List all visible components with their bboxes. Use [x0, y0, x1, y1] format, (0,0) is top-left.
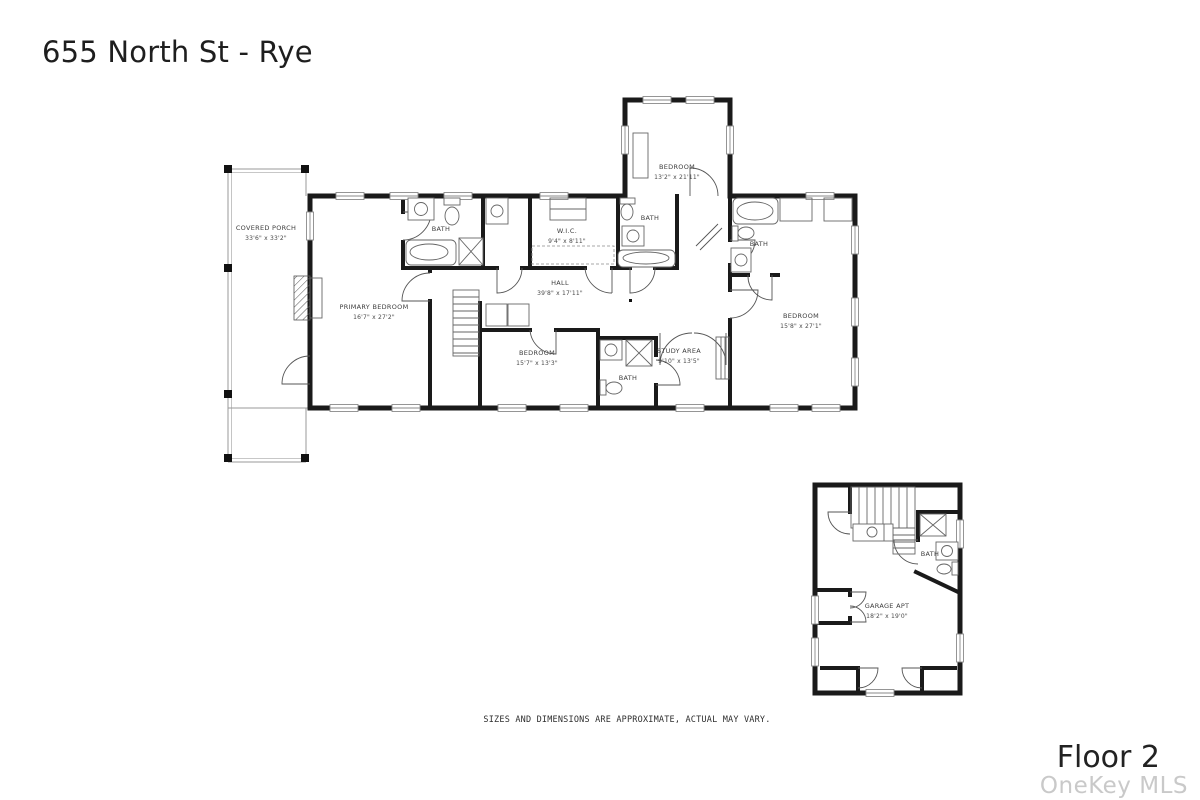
room-dims: 9'10" x 13'5" — [658, 358, 700, 365]
room-labels: COVERED PORCH 33'6" x 33'2" PRIMARY BEDR… — [236, 163, 939, 620]
room-name: BEDROOM — [783, 312, 819, 320]
room-dims: 16'7" x 27'2" — [353, 314, 395, 321]
window — [812, 405, 840, 412]
chimney — [294, 276, 322, 320]
room-label-covered-porch: COVERED PORCH 33'6" x 33'2" — [236, 224, 296, 242]
room-dims: 13'2" x 21'11" — [654, 174, 700, 181]
window — [852, 226, 859, 254]
room-dims: 18'2" x 19'0" — [866, 613, 908, 620]
room-name: BEDROOM — [659, 163, 695, 171]
water-closet-fixtures — [486, 198, 508, 224]
main-stairs — [453, 290, 479, 356]
window — [866, 690, 894, 697]
window — [676, 405, 704, 412]
room-name: HALL — [551, 279, 569, 287]
room-label-hall: HALL 39'8" x 17'11" — [537, 279, 583, 297]
garage-kitchenette — [853, 524, 893, 541]
room-label-bedroom-top: BEDROOM 13'2" x 21'11" — [654, 163, 700, 181]
room-name: PRIMARY BEDROOM — [340, 303, 409, 311]
window — [622, 126, 629, 154]
room-name: W.I.C. — [557, 227, 577, 235]
room-dims: 15'7" x 13'3" — [516, 360, 558, 367]
room-dims: 15'8" x 27'1" — [780, 323, 822, 330]
window — [498, 405, 526, 412]
room-name: STUDY AREA — [657, 347, 701, 355]
room-label-primary-bath: BATH — [432, 225, 450, 233]
watermark-onekey-mls: OneKey MLS — [1040, 773, 1188, 799]
window — [686, 97, 714, 104]
window — [560, 405, 588, 412]
window — [957, 634, 964, 662]
bedroom-right-closets — [780, 198, 852, 221]
hall-closets — [486, 304, 529, 326]
room-name: BATH — [641, 214, 659, 222]
disclaimer-text: SIZES AND DIMENSIONS ARE APPROXIMATE, AC… — [483, 715, 770, 725]
closet — [633, 133, 648, 178]
window — [307, 212, 314, 240]
window — [812, 638, 819, 666]
room-label-study-area: STUDY AREA 9'10" x 13'5" — [657, 347, 701, 365]
room-dims: 33'6" x 33'2" — [245, 235, 287, 242]
window — [392, 405, 420, 412]
bath-top-fixtures — [618, 198, 675, 267]
window — [812, 596, 819, 624]
floor-plan-canvas: COVERED PORCH 33'6" x 33'2" PRIMARY BEDR… — [0, 0, 1200, 800]
page-title: 655 North St - Rye — [42, 35, 313, 69]
room-name: BATH — [750, 240, 768, 248]
floor-label: Floor 2 — [1057, 740, 1160, 775]
room-label-bath-right: BATH — [750, 240, 768, 248]
room-name: COVERED PORCH — [236, 224, 296, 232]
room-label-bedroom-bottom: BEDROOM 15'7" x 13'3" — [516, 349, 558, 367]
room-name: BATH — [921, 550, 939, 558]
bath-right-fixtures — [731, 198, 778, 272]
room-name: BATH — [619, 374, 637, 382]
room-label-garage-apt: GARAGE APT 18'2" x 19'0" — [865, 602, 910, 620]
room-label-garage-bath: BATH — [921, 550, 939, 558]
window — [770, 405, 798, 412]
room-label-primary-bedroom: PRIMARY BEDROOM 16'7" x 27'2" — [340, 303, 409, 321]
room-name: BATH — [432, 225, 450, 233]
room-label-bedroom-right: BEDROOM 15'8" x 27'1" — [780, 312, 822, 330]
window — [852, 298, 859, 326]
room-label-wic: W.I.C. 9'4" x 8'11" — [548, 227, 586, 245]
room-name: GARAGE APT — [865, 602, 910, 610]
garage-bath-fixtures — [920, 514, 958, 575]
window — [727, 126, 734, 154]
hall-dot — [629, 299, 632, 302]
room-dims: 9'4" x 8'11" — [548, 238, 586, 245]
room-label-bath-top: BATH — [641, 214, 659, 222]
main-house-walls — [310, 100, 855, 408]
room-dims: 39'8" x 17'11" — [537, 290, 583, 297]
room-name: BEDROOM — [519, 349, 555, 357]
window — [852, 358, 859, 386]
window — [330, 405, 358, 412]
bath-bottom-fixtures — [600, 340, 652, 395]
garage-stairs — [851, 487, 915, 554]
window — [643, 97, 671, 104]
window — [336, 193, 364, 200]
floor-plan-page: COVERED PORCH 33'6" x 33'2" PRIMARY BEDR… — [0, 0, 1200, 800]
room-label-bath-bottom: BATH — [619, 374, 637, 382]
